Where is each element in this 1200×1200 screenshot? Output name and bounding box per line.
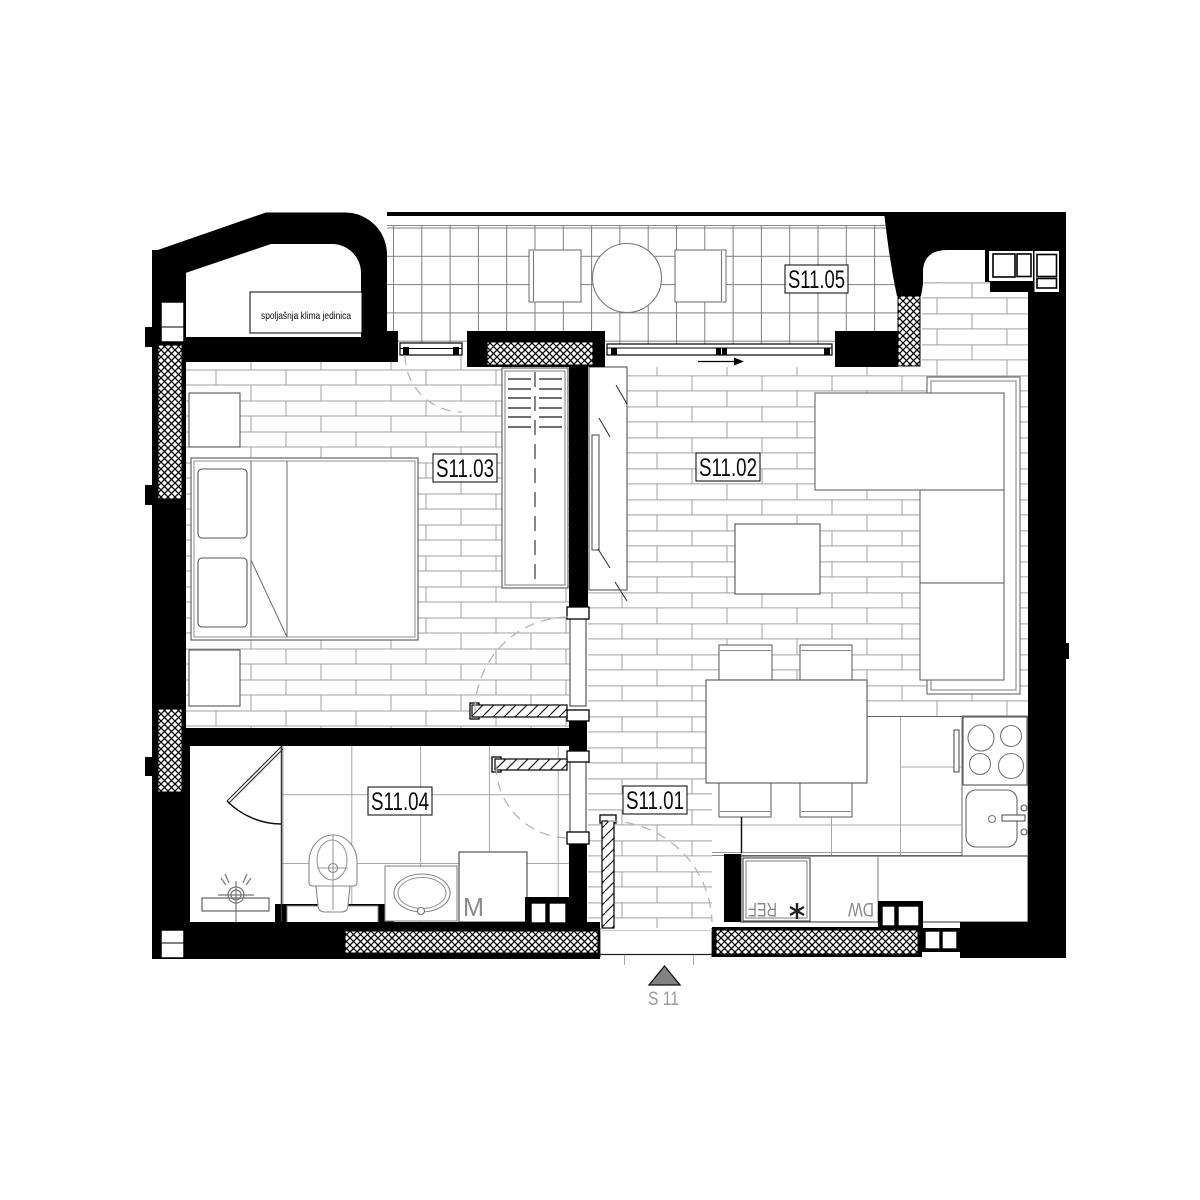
svg-text:DW: DW <box>848 898 874 919</box>
svg-text:REF: REF <box>748 898 777 919</box>
svg-text:S11.03: S11.03 <box>436 455 494 483</box>
svg-text:S11.01: S11.01 <box>626 787 684 815</box>
svg-text:S11.05: S11.05 <box>788 266 845 294</box>
svg-text:spoljašnja klima jedinica: spoljašnja klima jedinica <box>261 310 351 322</box>
svg-text:S11.04: S11.04 <box>371 788 429 816</box>
svg-text:S11.02: S11.02 <box>699 454 757 482</box>
svg-text:S 11: S 11 <box>648 989 679 1010</box>
svg-text:M: M <box>463 892 484 922</box>
